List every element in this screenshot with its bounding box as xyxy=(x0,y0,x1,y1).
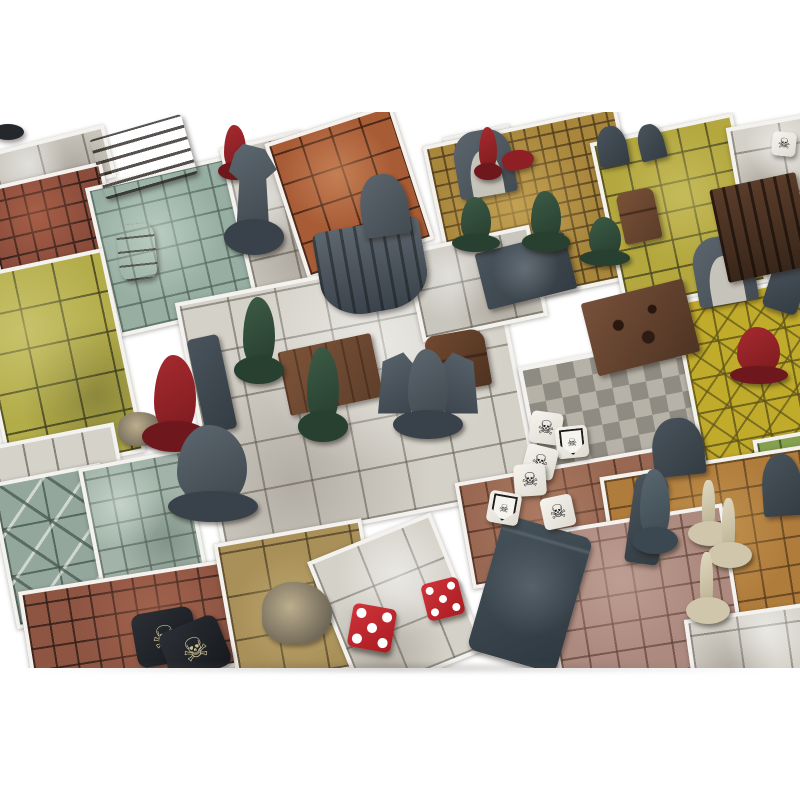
mini-red-figure-right xyxy=(730,330,788,384)
mini-green-goblin xyxy=(580,220,630,266)
cropped-base-top-left xyxy=(0,124,24,140)
mini-green-spearman xyxy=(234,302,284,384)
miniature-base xyxy=(298,411,348,442)
shield-icon: ☠ xyxy=(559,428,586,456)
tombstone xyxy=(760,453,800,518)
mini-green-goblin xyxy=(452,200,500,252)
board-shadow xyxy=(30,664,770,672)
skull-icon: ☠ xyxy=(521,470,539,490)
die-pip xyxy=(356,608,367,619)
miniature-base xyxy=(474,163,502,180)
boardgame-photo: ☠ ☠ ☠ ☠ ☠ ☠ ☠ ☠ ☠ xyxy=(0,112,800,668)
miniature-base xyxy=(234,356,284,384)
die-pip xyxy=(366,622,377,633)
miniature-base xyxy=(686,597,730,624)
die-pip xyxy=(438,594,448,604)
miniature-base xyxy=(452,234,500,252)
die-pip xyxy=(381,612,392,623)
mini-red-figure-arch xyxy=(474,130,502,180)
miniature-base xyxy=(580,250,630,266)
miniature-base xyxy=(168,491,258,522)
shield-icon: ☠ xyxy=(490,493,518,523)
die-pip xyxy=(377,637,388,648)
mini-teal-figure xyxy=(632,474,678,554)
die-pip xyxy=(451,602,461,612)
barrel xyxy=(115,222,159,282)
mini-gray-monster xyxy=(168,430,258,522)
miniature-base xyxy=(522,232,570,252)
miniature-base xyxy=(730,366,788,384)
mini-skeleton xyxy=(686,556,730,624)
miniature-base xyxy=(632,527,678,554)
die-pip xyxy=(446,581,456,591)
mini-green-goblin xyxy=(522,194,570,252)
mini-gray-steed xyxy=(224,150,284,255)
skull-icon: ☠ xyxy=(548,501,569,523)
skull-icon: ☠ xyxy=(567,436,578,448)
white-combat-die-shield: ☠ xyxy=(485,489,522,526)
skull-icon: ☠ xyxy=(498,502,510,515)
skull-icon: ☠ xyxy=(176,628,214,668)
red-die-five xyxy=(347,603,398,654)
white-combat-die-skull: ☠ xyxy=(771,131,797,157)
mini-gargoyle xyxy=(378,354,478,439)
white-combat-die-skull: ☠ xyxy=(539,493,577,531)
miniature-base xyxy=(393,410,463,439)
die-pip xyxy=(430,607,440,617)
die-pip xyxy=(425,586,435,596)
die-pip xyxy=(352,633,363,644)
skull-icon: ☠ xyxy=(777,136,791,151)
skull-icon: ☠ xyxy=(536,417,556,438)
white-combat-die-skull: ☠ xyxy=(513,463,547,497)
rubble-pile xyxy=(262,582,332,644)
mini-green-crossbowman xyxy=(298,352,348,442)
miniature-base xyxy=(224,219,284,255)
white-combat-die-shield: ☠ xyxy=(554,424,589,459)
